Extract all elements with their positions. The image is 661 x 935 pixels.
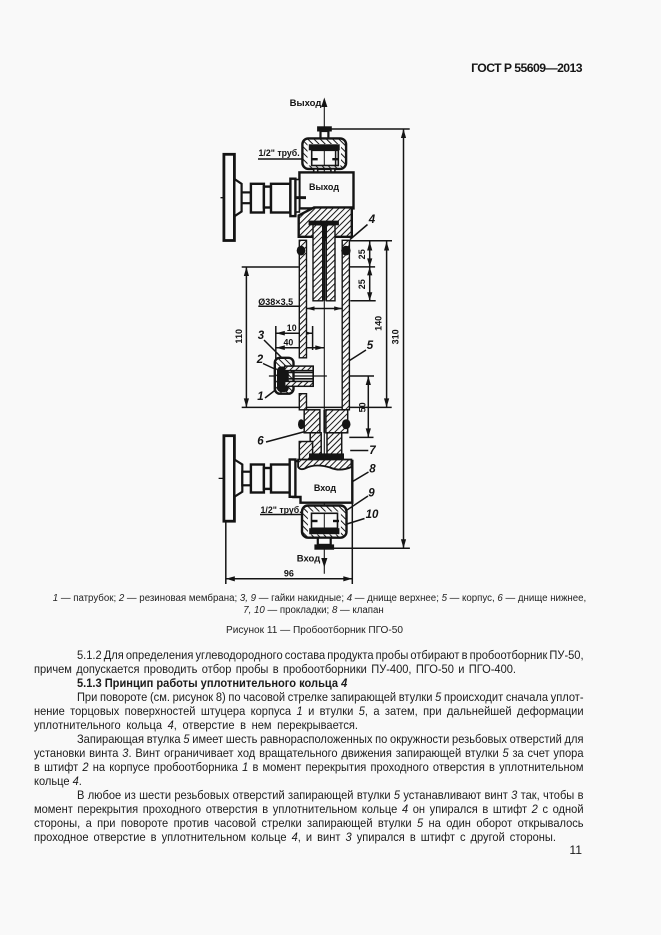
svg-text:Выход: Выход (290, 98, 322, 109)
svg-text:8: 8 (369, 463, 376, 475)
svg-text:3: 3 (258, 330, 265, 342)
svg-text:10: 10 (287, 323, 297, 333)
svg-text:5: 5 (367, 340, 374, 352)
svg-text:Ø38×3,5: Ø38×3,5 (258, 297, 293, 307)
svg-text:310: 310 (390, 329, 400, 344)
svg-text:1: 1 (257, 391, 263, 403)
svg-text:25: 25 (357, 249, 367, 259)
svg-text:Вход: Вход (297, 554, 321, 565)
svg-text:2: 2 (256, 354, 264, 366)
svg-text:Вход: Вход (314, 483, 337, 493)
svg-text:140: 140 (373, 316, 383, 331)
svg-text:Выход: Выход (309, 182, 339, 192)
svg-text:4: 4 (368, 214, 376, 226)
svg-text:96: 96 (284, 569, 294, 579)
svg-text:7: 7 (369, 445, 376, 457)
svg-text:110: 110 (234, 329, 244, 344)
svg-text:1/2" труб.: 1/2" труб. (261, 505, 302, 515)
svg-text:10: 10 (366, 509, 379, 521)
svg-text:25: 25 (357, 279, 367, 289)
svg-text:40: 40 (284, 337, 294, 347)
svg-text:9: 9 (368, 488, 375, 500)
svg-text:1/2" труб.: 1/2" труб. (259, 148, 300, 158)
svg-text:50: 50 (358, 402, 368, 412)
svg-text:6: 6 (257, 436, 264, 448)
